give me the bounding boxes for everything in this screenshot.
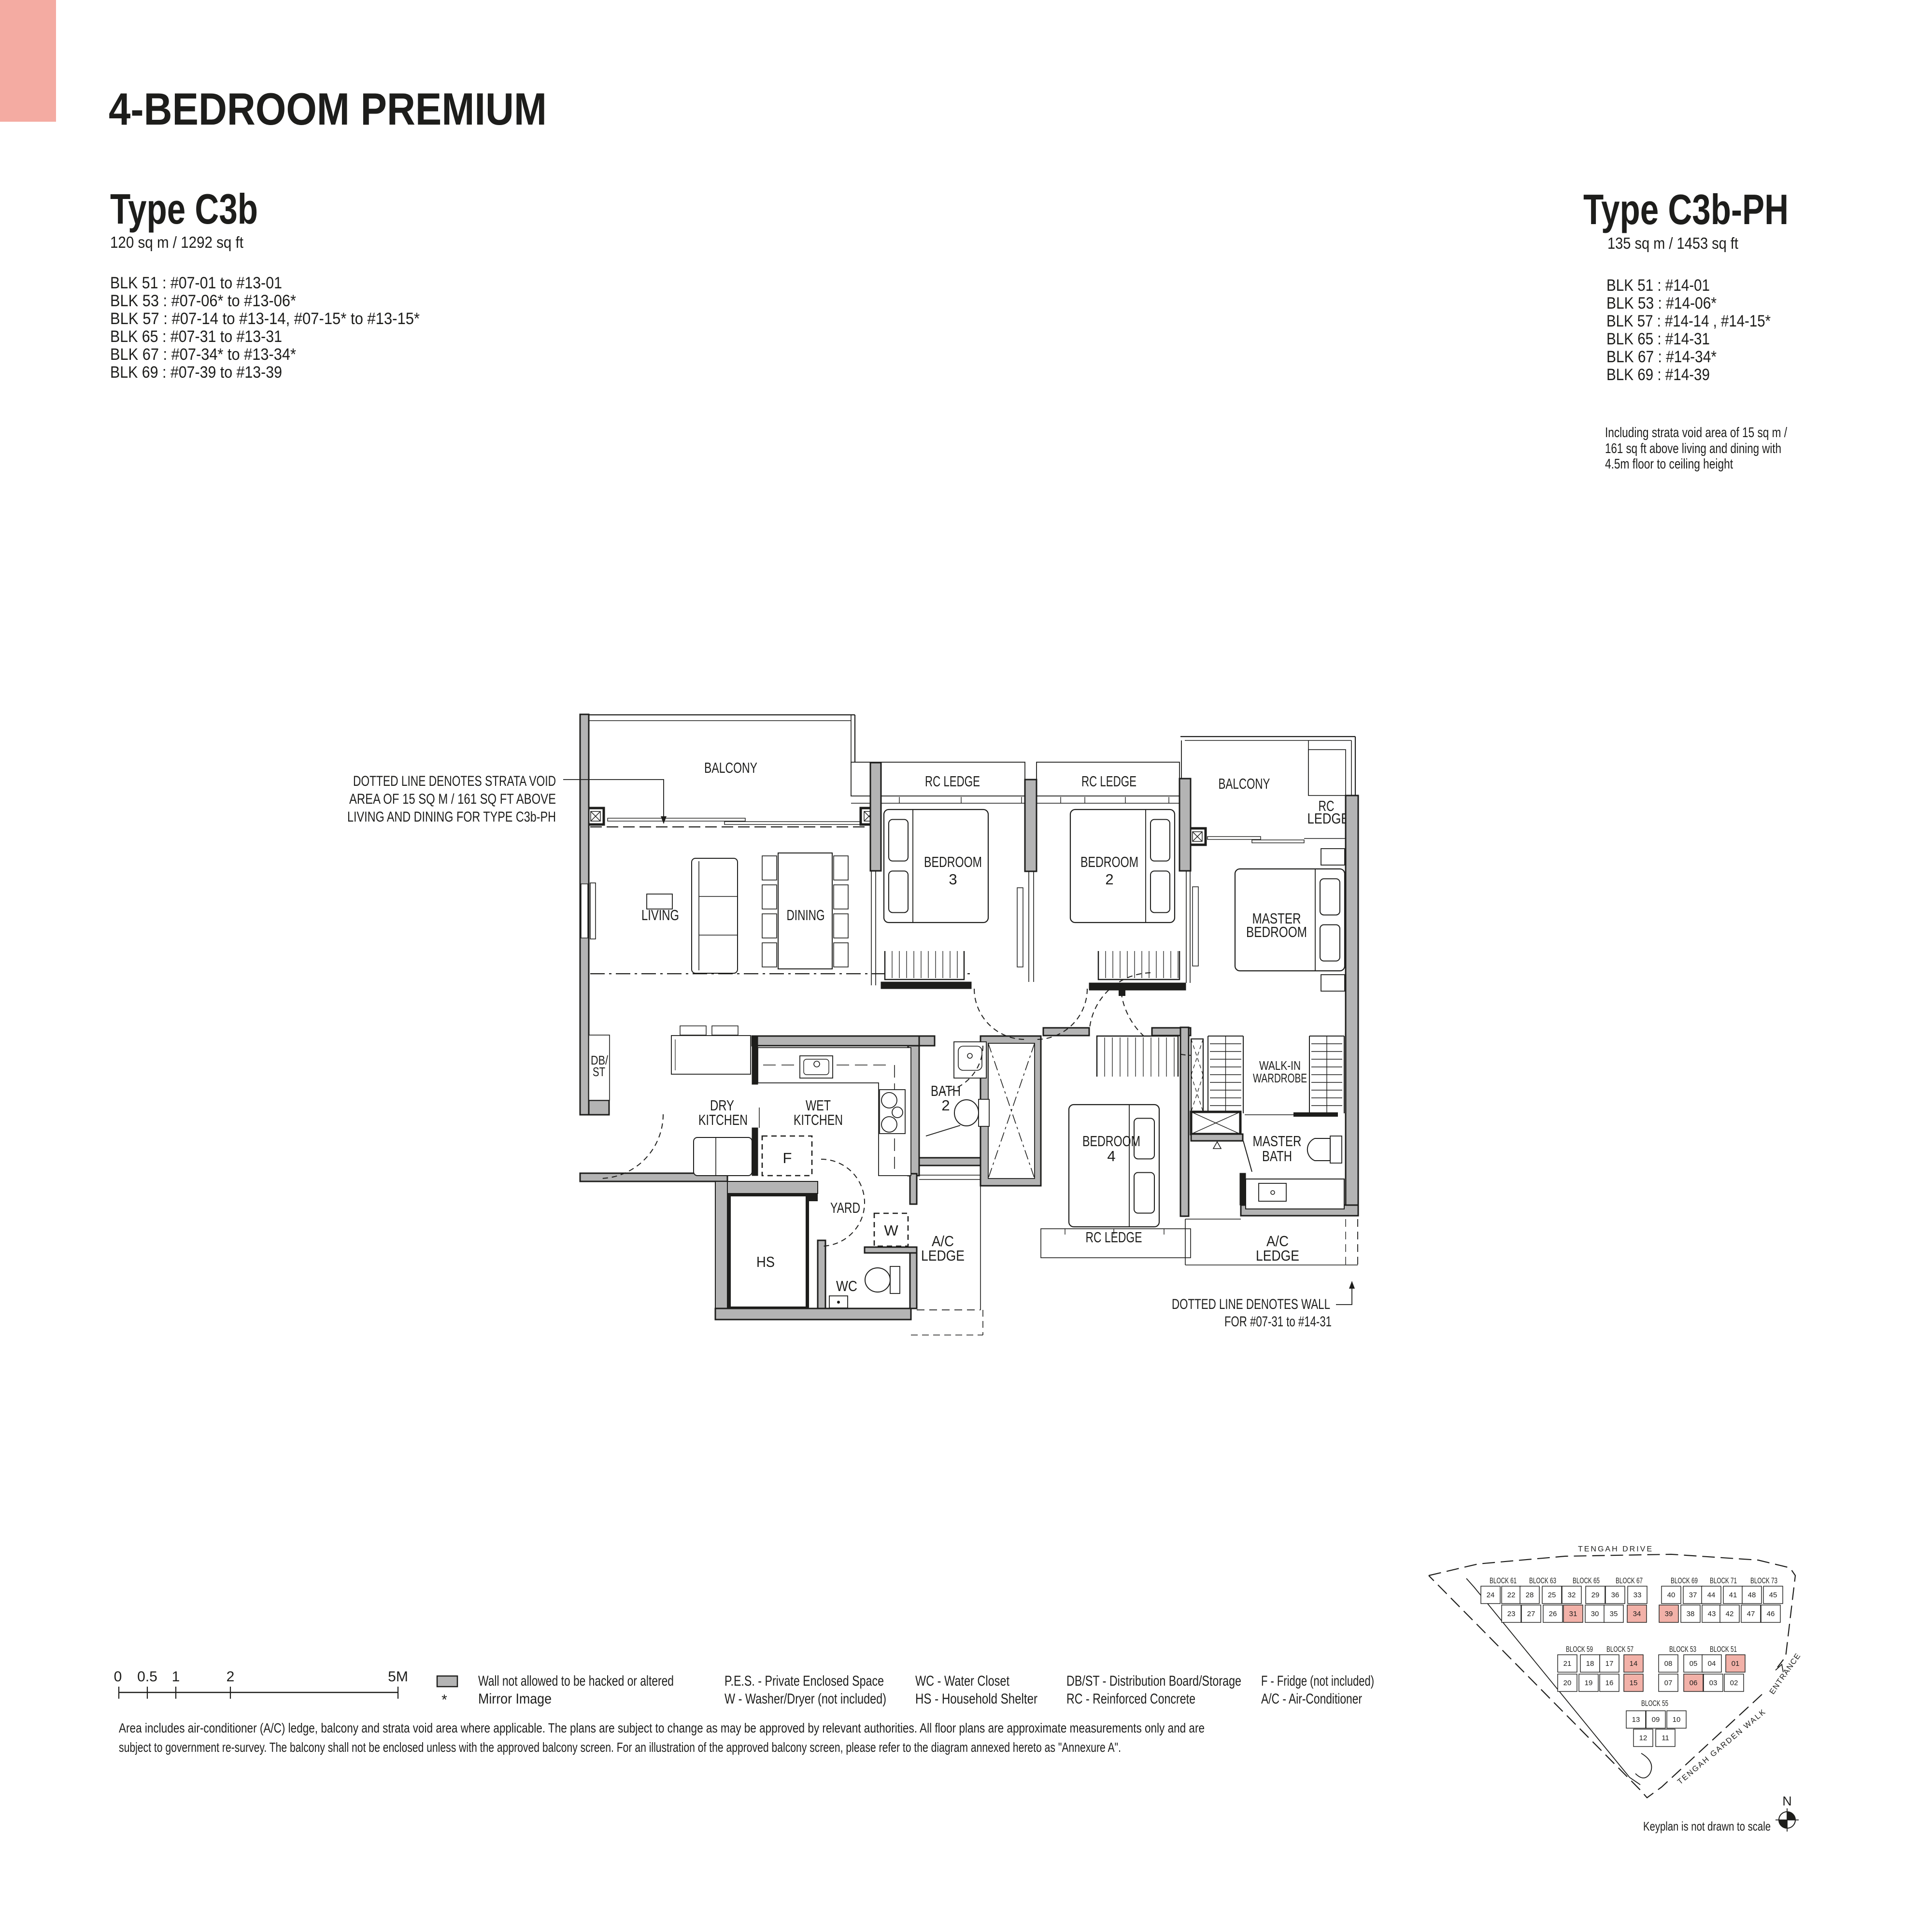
svg-text:36: 36 — [1611, 1591, 1619, 1599]
svg-text:41: 41 — [1729, 1591, 1737, 1599]
svg-text:BLK 69 : #14-39: BLK 69 : #14-39 — [1606, 366, 1710, 384]
svg-text:05: 05 — [1690, 1660, 1698, 1668]
svg-text:AREA OF 15 SQ M / 161 SQ FT AB: AREA OF 15 SQ M / 161 SQ FT ABOVE — [349, 791, 556, 807]
svg-text:29: 29 — [1591, 1591, 1600, 1599]
svg-text:LEDGE: LEDGE — [1307, 810, 1350, 827]
svg-text:0: 0 — [114, 1669, 122, 1685]
svg-text:BLOCK 53: BLOCK 53 — [1669, 1645, 1696, 1654]
svg-text:W - Washer/Dryer (not included: W - Washer/Dryer (not included) — [724, 1691, 886, 1707]
svg-text:10: 10 — [1673, 1716, 1681, 1724]
svg-text:Area includes air-conditioner: Area includes air-conditioner (A/C) ledg… — [119, 1720, 1205, 1735]
svg-text:BLK 67 : #14-34*: BLK 67 : #14-34* — [1606, 348, 1717, 366]
svg-text:34: 34 — [1633, 1610, 1641, 1618]
svg-text:RC - Reinforced Concrete: RC - Reinforced Concrete — [1066, 1691, 1195, 1707]
svg-text:Type C3b-PH: Type C3b-PH — [1583, 185, 1789, 233]
svg-text:2: 2 — [1105, 871, 1113, 888]
svg-text:BLK 53 : #07-06* to #13-06*: BLK 53 : #07-06* to #13-06* — [110, 292, 296, 310]
svg-text:BLK 65 : #14-31: BLK 65 : #14-31 — [1606, 330, 1710, 348]
svg-text:43: 43 — [1708, 1610, 1716, 1618]
svg-text:42: 42 — [1726, 1610, 1734, 1618]
svg-text:BLOCK 67: BLOCK 67 — [1616, 1576, 1643, 1585]
svg-text:0.5: 0.5 — [137, 1669, 157, 1685]
svg-text:2: 2 — [227, 1669, 235, 1685]
svg-text:26: 26 — [1549, 1610, 1557, 1618]
svg-text:BLK 57 : #07-14 to #13-14, #07: BLK 57 : #07-14 to #13-14, #07-15* to #1… — [110, 310, 420, 328]
svg-text:4-BEDROOM PREMIUM: 4-BEDROOM PREMIUM — [109, 84, 547, 134]
svg-text:BLK 51 : #14-01: BLK 51 : #14-01 — [1606, 276, 1710, 295]
svg-text:P.E.S. - Private Enclosed Spac: P.E.S. - Private Enclosed Space — [724, 1673, 884, 1689]
svg-text:22: 22 — [1507, 1591, 1516, 1599]
svg-text:DOTTED LINE DENOTES WALL: DOTTED LINE DENOTES WALL — [1172, 1296, 1330, 1312]
svg-text:W: W — [884, 1222, 898, 1239]
svg-text:BLOCK 65: BLOCK 65 — [1573, 1576, 1600, 1585]
svg-text:BLK 67 : #07-34* to #13-34*: BLK 67 : #07-34* to #13-34* — [110, 345, 296, 364]
svg-text:23: 23 — [1507, 1610, 1516, 1618]
svg-text:04: 04 — [1708, 1660, 1716, 1668]
svg-text:BLOCK 51: BLOCK 51 — [1710, 1645, 1737, 1654]
svg-text:WARDROBE: WARDROBE — [1253, 1071, 1307, 1085]
svg-text:18: 18 — [1586, 1660, 1594, 1668]
svg-text:LIVING AND DINING FOR TYPE C3: LIVING AND DINING FOR TYPE C3b-PH — [347, 809, 556, 825]
svg-text:17: 17 — [1605, 1660, 1614, 1668]
svg-text:BEDROOM: BEDROOM — [1080, 853, 1138, 870]
svg-text:TENGAH DRIVE: TENGAH DRIVE — [1578, 1545, 1653, 1553]
svg-text:Including strata void area of: Including strata void area of 15 sq m / — [1605, 425, 1788, 440]
svg-text:RC LEDGE: RC LEDGE — [925, 773, 980, 790]
svg-text:20: 20 — [1563, 1679, 1572, 1687]
svg-text:38: 38 — [1687, 1610, 1695, 1618]
svg-text:BLOCK 59: BLOCK 59 — [1566, 1645, 1593, 1654]
svg-text:F - Fridge (not included): F - Fridge (not included) — [1261, 1673, 1374, 1689]
svg-text:BALCONY: BALCONY — [1219, 775, 1270, 792]
svg-text:BEDROOM: BEDROOM — [1082, 1133, 1140, 1150]
svg-text:07: 07 — [1664, 1679, 1673, 1687]
svg-text:HS: HS — [756, 1253, 775, 1270]
svg-text:32: 32 — [1568, 1591, 1576, 1599]
svg-text:RC LEDGE: RC LEDGE — [1081, 773, 1136, 790]
svg-text:161 sq ft above living and din: 161 sq ft above living and dining with — [1605, 441, 1781, 456]
svg-text:09: 09 — [1652, 1716, 1660, 1724]
svg-text:BLOCK 57: BLOCK 57 — [1606, 1645, 1634, 1654]
svg-text:LEDGE: LEDGE — [921, 1247, 965, 1264]
svg-text:47: 47 — [1747, 1610, 1755, 1618]
svg-text:1: 1 — [172, 1669, 180, 1685]
svg-text:48: 48 — [1748, 1591, 1756, 1599]
svg-text:KITCHEN: KITCHEN — [794, 1111, 843, 1128]
svg-text:15: 15 — [1630, 1679, 1638, 1687]
svg-text:BLK 69 : #07-39 to #13-39: BLK 69 : #07-39 to #13-39 — [110, 363, 282, 382]
svg-text:06: 06 — [1690, 1679, 1698, 1687]
svg-text:LIVING: LIVING — [641, 907, 679, 923]
svg-text:DOTTED LINE DENOTES STRATA VOI: DOTTED LINE DENOTES STRATA VOID — [353, 773, 556, 789]
svg-text:BLOCK 71: BLOCK 71 — [1710, 1576, 1737, 1585]
svg-text:45: 45 — [1769, 1591, 1777, 1599]
svg-text:ST: ST — [593, 1065, 605, 1079]
svg-text:FOR #07-31 to #14-31: FOR #07-31 to #14-31 — [1224, 1314, 1332, 1330]
svg-text:N: N — [1782, 1794, 1792, 1808]
svg-text:Type C3b: Type C3b — [110, 185, 258, 233]
svg-text:BEDROOM: BEDROOM — [924, 853, 982, 870]
svg-text:BEDROOM: BEDROOM — [1246, 923, 1307, 940]
svg-text:RC LEDGE: RC LEDGE — [1086, 1229, 1142, 1246]
svg-text:40: 40 — [1667, 1591, 1676, 1599]
svg-text:39: 39 — [1665, 1610, 1673, 1618]
svg-text:24: 24 — [1487, 1591, 1495, 1599]
svg-text:25: 25 — [1548, 1591, 1556, 1599]
svg-text:Mirror Image: Mirror Image — [478, 1691, 552, 1707]
svg-text:37: 37 — [1689, 1591, 1697, 1599]
svg-text:WC - Water Closet: WC - Water Closet — [915, 1673, 1010, 1689]
svg-text:LEDGE: LEDGE — [1256, 1247, 1299, 1264]
svg-text:46: 46 — [1767, 1610, 1775, 1618]
svg-text:BLOCK 69: BLOCK 69 — [1671, 1576, 1698, 1585]
svg-text:44: 44 — [1707, 1591, 1716, 1599]
svg-text:Keyplan is not drawn to scale: Keyplan is not drawn to scale — [1643, 1819, 1771, 1833]
svg-text:BLOCK 73: BLOCK 73 — [1750, 1576, 1777, 1585]
svg-text:BALCONY: BALCONY — [704, 759, 757, 776]
svg-text:28: 28 — [1526, 1591, 1534, 1599]
svg-text:*: * — [441, 1692, 447, 1708]
svg-text:27: 27 — [1527, 1610, 1535, 1618]
svg-text:35: 35 — [1610, 1610, 1618, 1618]
svg-text:BLK 51 : #07-01 to #13-01: BLK 51 : #07-01 to #13-01 — [110, 274, 282, 292]
svg-text:31: 31 — [1569, 1610, 1577, 1618]
svg-text:11: 11 — [1662, 1734, 1669, 1742]
svg-text:135 sq m / 1453 sq ft: 135 sq m / 1453 sq ft — [1607, 234, 1738, 252]
svg-text:21: 21 — [1563, 1660, 1572, 1668]
svg-text:BLOCK 61: BLOCK 61 — [1490, 1576, 1517, 1585]
svg-text:5M: 5M — [388, 1669, 408, 1685]
svg-text:4: 4 — [1107, 1148, 1115, 1165]
svg-text:12: 12 — [1639, 1734, 1648, 1742]
svg-text:KITCHEN: KITCHEN — [698, 1111, 748, 1128]
svg-text:19: 19 — [1585, 1679, 1593, 1687]
svg-text:YARD: YARD — [830, 1199, 860, 1216]
svg-text:14: 14 — [1630, 1660, 1638, 1668]
svg-text:BLK 65 : #07-31 to #13-31: BLK 65 : #07-31 to #13-31 — [110, 327, 282, 346]
svg-text:subject to government re-surve: subject to government re-survey. The bal… — [119, 1740, 1121, 1755]
svg-text:WC: WC — [836, 1278, 857, 1294]
svg-text:DB/ST - Distribution Board/Sto: DB/ST - Distribution Board/Storage — [1066, 1673, 1241, 1689]
svg-text:02: 02 — [1730, 1679, 1738, 1687]
svg-text:HS - Household Shelter: HS - Household Shelter — [915, 1691, 1037, 1707]
svg-text:MASTER: MASTER — [1253, 1133, 1302, 1150]
svg-text:BLOCK 63: BLOCK 63 — [1529, 1576, 1556, 1585]
svg-text:BLK 57 : #14-14 , #14-15*: BLK 57 : #14-14 , #14-15* — [1606, 312, 1771, 330]
svg-text:4.5m floor to ceiling height: 4.5m floor to ceiling height — [1605, 456, 1733, 472]
svg-text:16: 16 — [1605, 1679, 1614, 1687]
svg-text:DINING: DINING — [787, 907, 825, 923]
svg-text:Wall not allowed to be hacked: Wall not allowed to be hacked or altered — [478, 1673, 674, 1689]
svg-text:13: 13 — [1632, 1716, 1640, 1724]
svg-text:33: 33 — [1634, 1591, 1642, 1599]
svg-text:03: 03 — [1709, 1679, 1718, 1687]
svg-text:08: 08 — [1664, 1660, 1673, 1668]
svg-text:2: 2 — [941, 1097, 950, 1114]
svg-text:120 sq m / 1292 sq ft: 120 sq m / 1292 sq ft — [110, 233, 243, 251]
svg-text:01: 01 — [1732, 1660, 1740, 1668]
svg-text:BLOCK 55: BLOCK 55 — [1641, 1699, 1668, 1708]
svg-text:BATH: BATH — [1262, 1148, 1292, 1165]
svg-text:3: 3 — [949, 871, 957, 888]
svg-text:A/C - Air-Conditioner: A/C - Air-Conditioner — [1261, 1691, 1362, 1707]
svg-text:BLK 53 : #14-06*: BLK 53 : #14-06* — [1606, 294, 1717, 313]
svg-text:F: F — [783, 1150, 792, 1166]
svg-text:30: 30 — [1591, 1610, 1599, 1618]
